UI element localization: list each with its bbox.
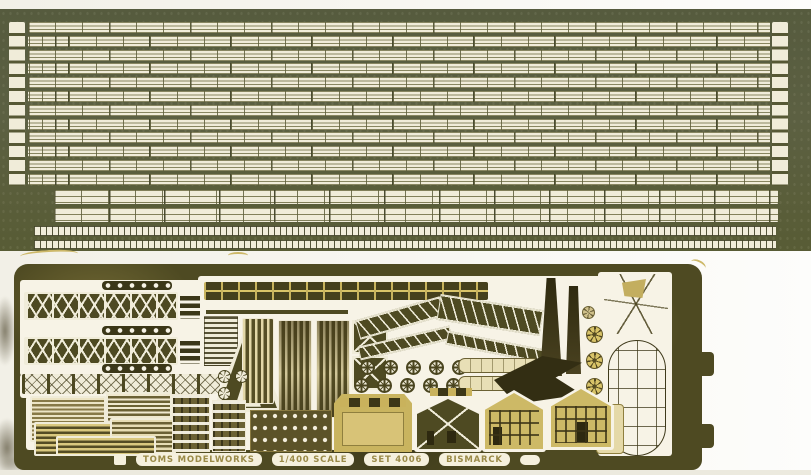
railing-strip bbox=[28, 146, 770, 157]
railing-rows-group bbox=[28, 22, 770, 185]
railing-strip bbox=[28, 50, 770, 61]
railing-strip bbox=[28, 132, 770, 143]
pulley-wheel bbox=[377, 378, 392, 393]
bulkhead-wall-part bbox=[212, 400, 246, 452]
boom-end-part bbox=[178, 291, 202, 321]
hatch-strip-part bbox=[22, 374, 220, 394]
door-slot bbox=[577, 422, 588, 442]
ship-name-label: BISMARCK bbox=[439, 453, 510, 466]
fret-tab-column-right bbox=[772, 22, 788, 186]
fret-edge-tab bbox=[701, 424, 714, 448]
crane-boom-part bbox=[24, 337, 178, 365]
rivet-strip-part bbox=[102, 326, 172, 335]
railing-strip bbox=[28, 91, 770, 102]
funnel-cap-part bbox=[334, 394, 412, 452]
spoked-wheel bbox=[218, 370, 231, 383]
brand-label: TOMS MODELWORKS bbox=[136, 453, 262, 466]
wide-railing-rows-group bbox=[54, 190, 778, 222]
pulley-wheel bbox=[360, 360, 375, 375]
door-slot bbox=[493, 427, 502, 445]
derrick-lattice-part bbox=[604, 274, 668, 334]
pulley-wheel bbox=[400, 378, 415, 393]
detail-fret-sheet: TOMS MODELWORKS 1/400 SCALE SET 4006 BIS… bbox=[14, 264, 702, 470]
brass-sliver bbox=[228, 252, 248, 259]
railing-fret-sheet bbox=[0, 9, 811, 251]
pulley-wheel bbox=[383, 360, 398, 375]
door-slot bbox=[447, 431, 456, 443]
fret-tab-column-left bbox=[9, 22, 25, 186]
rivet-strip-part bbox=[102, 364, 172, 373]
railing-strip bbox=[28, 77, 770, 88]
railing-strip bbox=[28, 22, 770, 33]
railing-strip bbox=[28, 174, 770, 185]
porthole-wall-part bbox=[250, 410, 332, 452]
wide-railing-strip bbox=[54, 190, 778, 204]
propeller-disc bbox=[586, 326, 603, 343]
boom-end-part bbox=[178, 336, 202, 366]
ladder-strip bbox=[34, 226, 776, 236]
pulley-wheel bbox=[406, 360, 421, 375]
slat-grate-part bbox=[204, 316, 238, 366]
bulkhead-wall-part bbox=[172, 394, 210, 452]
banner-end-cap bbox=[114, 454, 126, 465]
propeller-small bbox=[582, 306, 595, 319]
propeller-disc bbox=[586, 352, 603, 369]
railing-strip bbox=[28, 36, 770, 47]
ladder-strips-group bbox=[34, 226, 776, 249]
railing-strip bbox=[28, 63, 770, 74]
maker-banner: TOMS MODELWORKS 1/400 SCALE SET 4006 BIS… bbox=[114, 453, 540, 466]
scale-label: 1/400 SCALE bbox=[272, 453, 355, 466]
wide-railing-strip bbox=[54, 208, 778, 222]
scan-edge bbox=[0, 470, 811, 475]
door-slot bbox=[427, 431, 434, 445]
spoked-wheel bbox=[218, 387, 231, 400]
spoked-wheel bbox=[235, 370, 248, 383]
railing-strip bbox=[28, 119, 770, 130]
banner-end-cap bbox=[520, 455, 540, 465]
fret-edge-tab bbox=[701, 352, 714, 376]
ladder-strip bbox=[34, 240, 776, 250]
funnel-cap-band bbox=[340, 398, 406, 407]
pulley-row bbox=[360, 360, 467, 375]
photo-etch-scan: TOMS MODELWORKS 1/400 SCALE SET 4006 BIS… bbox=[0, 0, 811, 475]
rivet-strip-part bbox=[102, 281, 172, 290]
set-number-label: SET 4006 bbox=[364, 453, 429, 466]
vent-grate-part bbox=[278, 320, 312, 418]
crane-boom-part bbox=[24, 292, 178, 320]
railing-strip bbox=[28, 105, 770, 116]
railing-strip bbox=[28, 160, 770, 171]
pulley-wheel bbox=[429, 360, 444, 375]
funnel-cap-face bbox=[342, 412, 404, 446]
vent-band-part bbox=[430, 388, 472, 396]
pulley-wheel bbox=[354, 378, 369, 393]
